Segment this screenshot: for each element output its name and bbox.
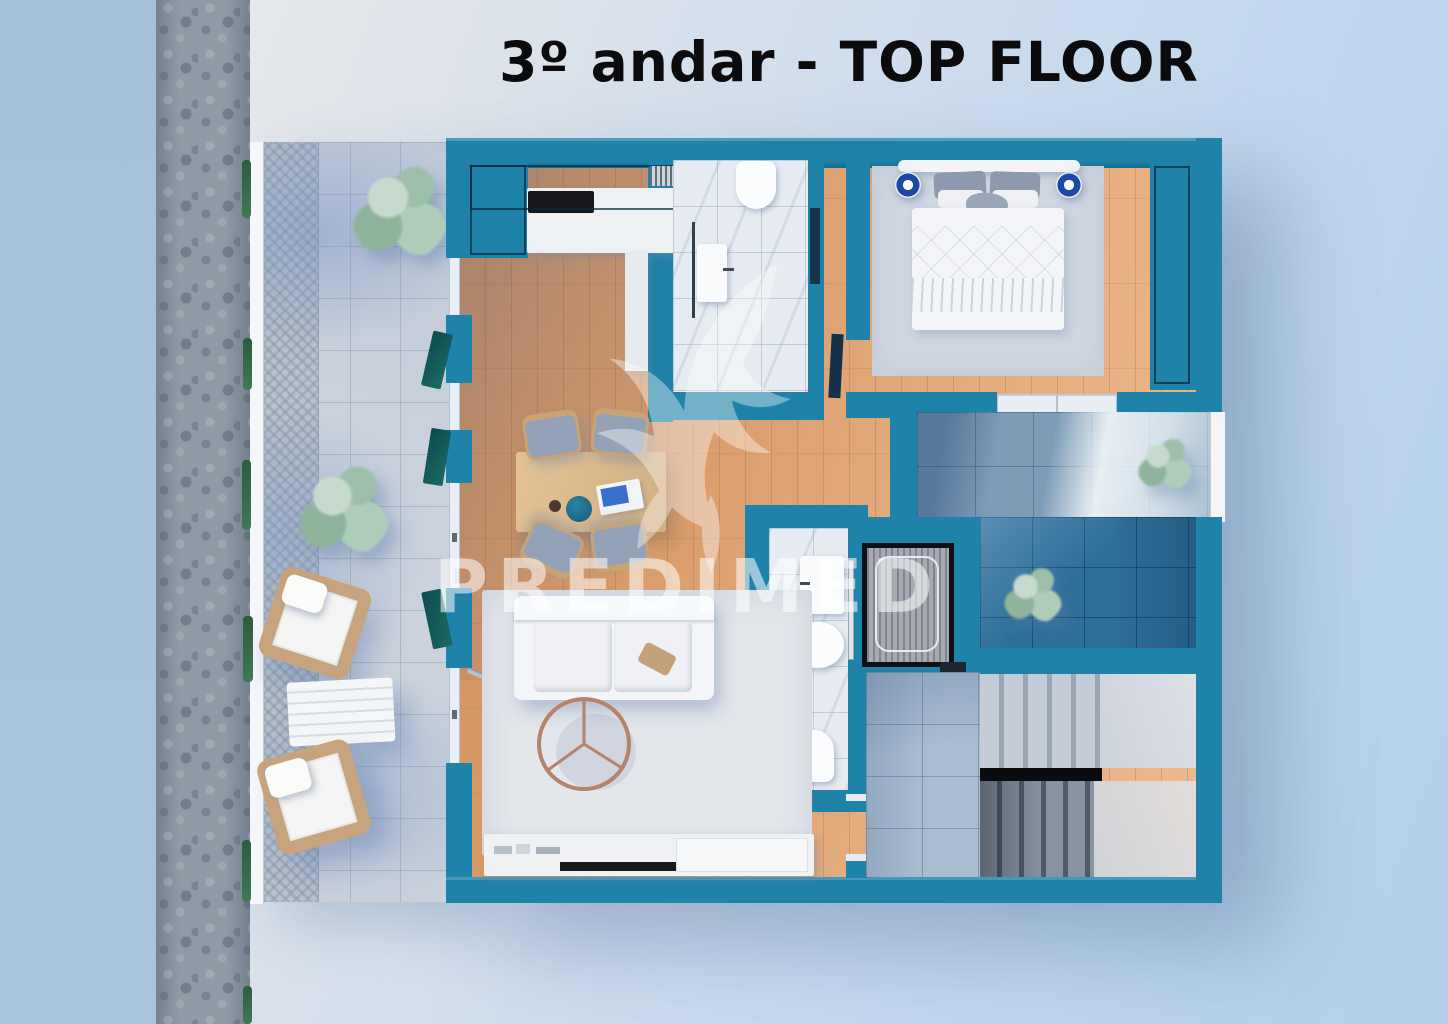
bowl-small (549, 500, 561, 512)
duvet-folds (912, 278, 1064, 312)
decor-item (494, 846, 512, 854)
floorplan-scene: 3º andar - TOP FLOOR (0, 0, 1448, 1024)
hedge-glimpse (242, 840, 251, 902)
hall-door-frame-post (846, 854, 866, 861)
entry-door-mark (940, 662, 966, 672)
terrace-plant (350, 158, 450, 262)
bedside-lamp (895, 172, 921, 198)
round-coffee-table (534, 694, 638, 798)
media-cabinet (676, 838, 808, 872)
door-handle (452, 710, 457, 719)
hedge-glimpse (242, 160, 251, 218)
bottom-wall (446, 877, 1222, 903)
terrace-plant (296, 458, 392, 558)
stairs-lower-flight (980, 781, 1094, 877)
tv-console (484, 834, 814, 876)
page-title: 3º andar - TOP FLOOR (250, 30, 1448, 94)
hedge-glimpse (243, 616, 253, 682)
background-left-band (0, 0, 156, 1024)
duvet-quilting (912, 226, 1064, 278)
hedge-glimpse (243, 338, 252, 390)
bedside-lamp (1056, 172, 1082, 198)
stairs-upper-flight (980, 674, 1100, 768)
watermark-logo-dove-icon (585, 252, 885, 582)
hedge-glimpse (242, 460, 251, 530)
core-wall (846, 860, 868, 878)
terrace-bottom-wall (980, 648, 1222, 674)
toilet (736, 161, 776, 209)
hedge-glimpse (243, 986, 252, 1024)
wardrobe-outline (1154, 166, 1190, 384)
sofa-cushion (534, 622, 612, 692)
headboard-shelf (898, 160, 1080, 172)
terrace-coffee-table (286, 677, 395, 746)
hall-door-frame-post (846, 794, 866, 801)
stairs-right-wall (1196, 674, 1222, 903)
stairs-upper-landing (1100, 674, 1196, 768)
tall-cabinet-outline (470, 165, 526, 255)
wall-right-upper (1196, 138, 1222, 420)
wardrobe (1150, 162, 1196, 390)
upper-terrace-railing (1210, 412, 1225, 522)
stairs-landing-edge (980, 768, 1102, 781)
wall-top (446, 138, 1222, 168)
watermark-text: PREDIMED (408, 544, 968, 630)
terrace-plant (1002, 563, 1064, 625)
wall-pier (446, 315, 472, 383)
hall-shade (866, 672, 980, 877)
door-handle (452, 533, 457, 542)
cobblestone-path (156, 0, 250, 1024)
terrace-plant (1136, 434, 1194, 492)
decor-item (516, 844, 530, 854)
sliding-glass-door (997, 394, 1117, 414)
decor-item (536, 847, 560, 854)
armchair-cushion (263, 756, 314, 800)
dining-chair (521, 408, 583, 461)
armchair-cushion (280, 573, 330, 616)
corridor-terrace-wall (890, 418, 917, 522)
stairs-lower-landing (1094, 781, 1196, 877)
double-bed (912, 208, 1064, 330)
